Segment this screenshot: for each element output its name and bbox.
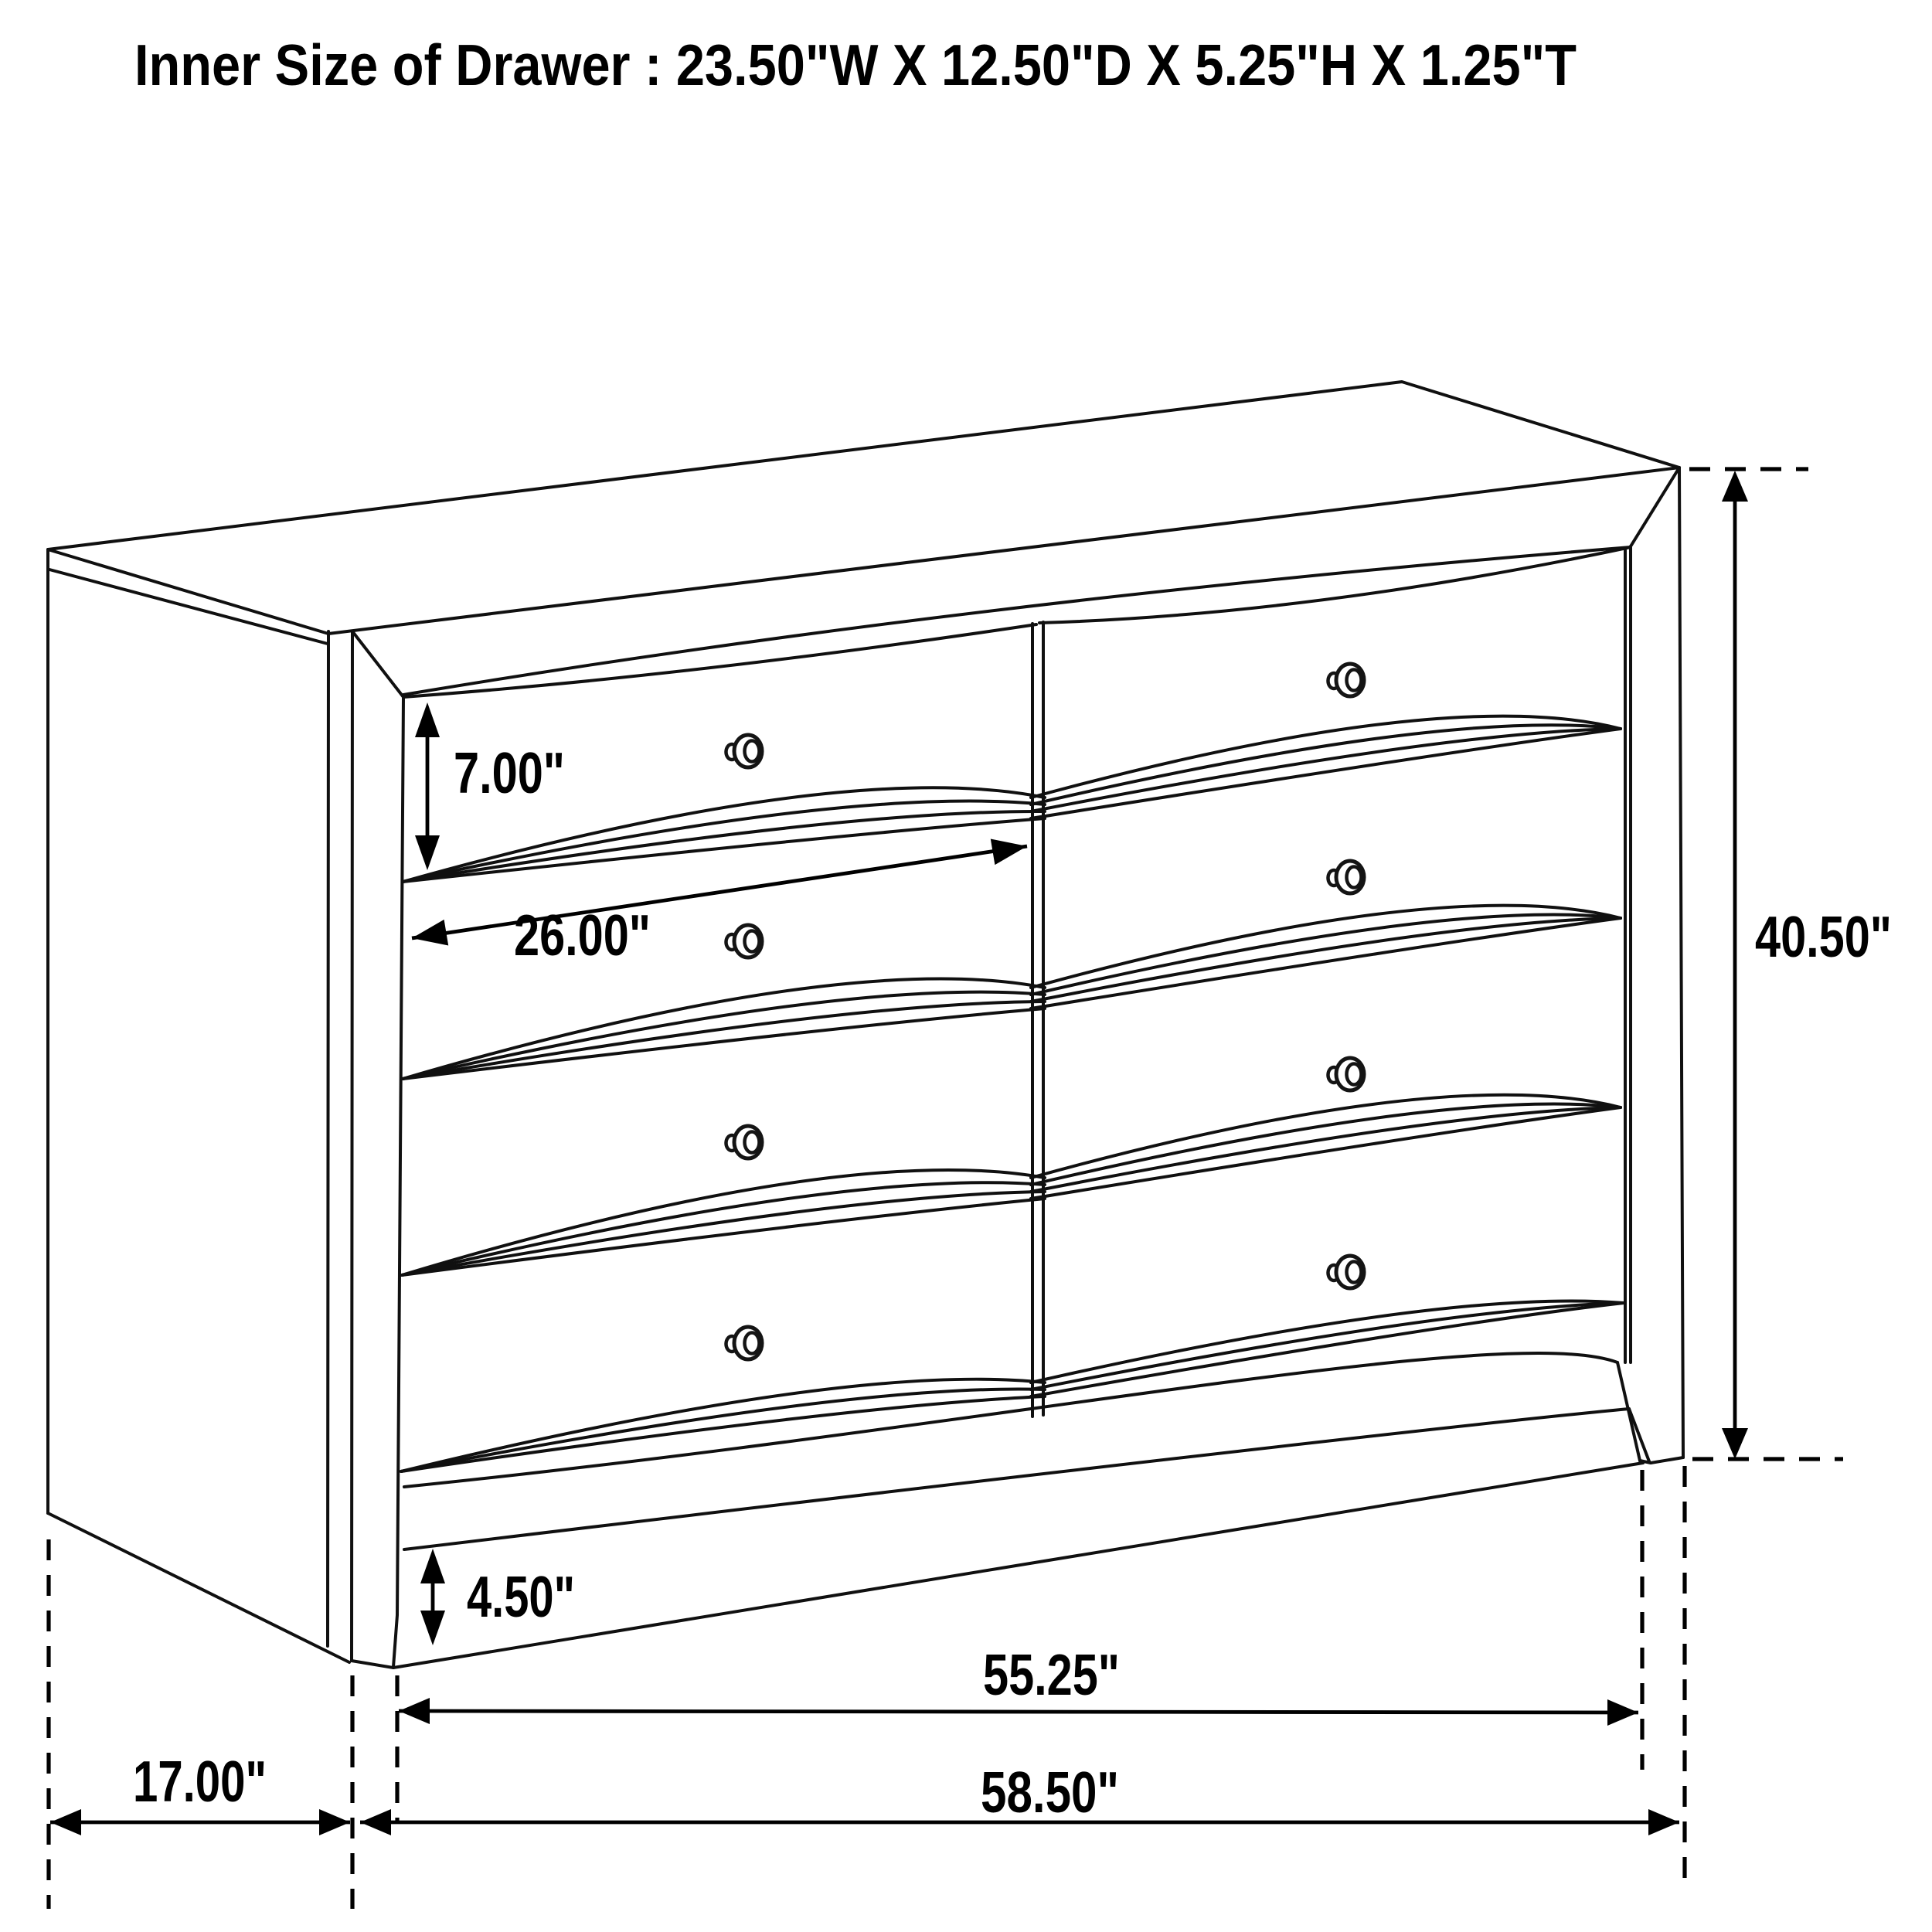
- svg-text:58.50": 58.50": [981, 1760, 1119, 1825]
- svg-text:7.00": 7.00": [454, 740, 565, 805]
- svg-text:26.00": 26.00": [514, 903, 651, 968]
- svg-text:17.00": 17.00": [133, 1749, 267, 1814]
- svg-text:Inner Size of Drawer : 23.50"W: Inner Size of Drawer : 23.50"W X 12.50"D…: [134, 32, 1577, 97]
- svg-text:4.50": 4.50": [467, 1564, 575, 1629]
- svg-text:55.25": 55.25": [983, 1642, 1120, 1707]
- svg-text:40.50": 40.50": [1755, 904, 1892, 969]
